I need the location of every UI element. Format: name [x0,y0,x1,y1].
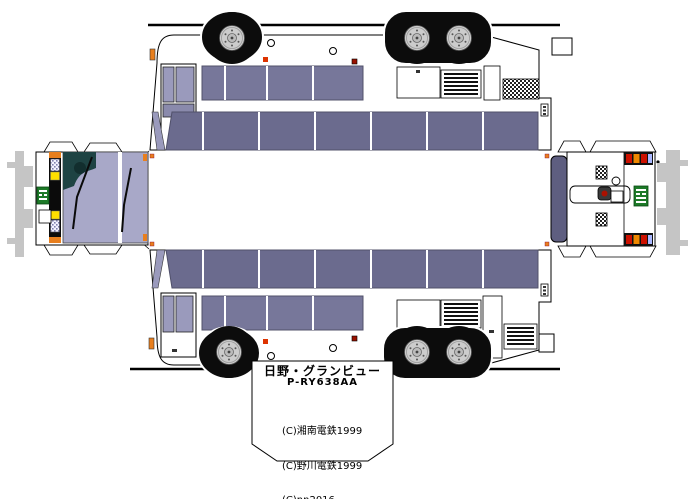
front-wheel-lower [203,326,255,378]
reflector-dark-lower [352,336,357,341]
side-view-left [130,250,560,379]
reflector-dark [352,59,357,64]
roof-marker-2 [150,242,154,246]
rear-license-plate [634,186,648,206]
rear-wheel-2 [433,12,485,64]
credit-line-2: (C)野川電鉄1999 [282,461,362,473]
front-wheel [206,12,258,64]
rear-cap [612,177,620,185]
glue-shadow-front [7,151,33,257]
credit-line-1: (C)湘南電鉄1999 [282,426,362,438]
rear-window [551,156,567,242]
knob-red-dot [602,191,608,197]
front-license-plate [37,187,49,204]
marker-light-lower [149,338,154,349]
corner-marker-2 [143,234,147,241]
roof-marker-4 [545,242,549,246]
upper-window-band-lower [166,250,538,288]
tail-lights-top [624,152,653,165]
credit-line-3: (C)nn2016 [282,495,362,499]
turn-signal-2 [51,211,60,219]
clearance-light-2 [49,237,61,243]
glue-shadow-rear [657,150,688,255]
rear-small-panel [611,191,623,202]
steering-wheel [74,162,86,174]
tail-lights-bottom [624,233,653,246]
rear-tab-upper [552,38,572,55]
filler-cap-lower [330,345,337,352]
side-view-right-inverted [148,11,572,150]
credits-block: (C)湘南電鉄1999 (C)野川電鉄1999 (C)nn2016 [282,403,362,499]
rear-vent-1 [596,166,607,179]
roof-marker-3 [545,154,549,158]
papercraft-sheet: 日野・グランビュー P-RY638AA (C)湘南電鉄1999 (C)野川電鉄1… [0,0,697,499]
reflector-red-lower [263,339,268,344]
front-door-lower [161,293,196,357]
corner-marker-1 [143,154,147,161]
plate-holder [39,210,51,223]
door-handle [416,70,420,73]
reflector-red [263,57,268,62]
marker-light [150,49,155,60]
headlight-1 [51,159,60,171]
turn-signal-1 [51,172,60,180]
rear-panel [484,66,500,100]
rear-view [551,141,688,257]
roof-panel [141,151,549,249]
rear-grille-lower [504,324,537,349]
engine-grille [441,70,481,98]
main-window-band [202,66,363,100]
upper-window-band [166,112,538,150]
fuel-cap-lower [268,353,275,360]
model-code-label: P-RY638AA [252,377,393,388]
engine-grille-lower [441,300,481,328]
filler-cap [330,48,337,55]
clearance-light-1 [49,152,61,158]
headlight-2 [51,220,60,232]
rear-vent-checkered [503,79,539,99]
windshield [63,152,148,243]
rear-wheel-2-lower [433,326,485,378]
fuel-cap [268,40,275,47]
front-view [7,142,148,257]
roof-marker-1 [150,154,154,158]
rear-vent-2 [596,213,607,226]
main-window-band-lower [202,296,363,330]
rear-step [539,334,554,352]
headlight-strip [49,152,61,243]
